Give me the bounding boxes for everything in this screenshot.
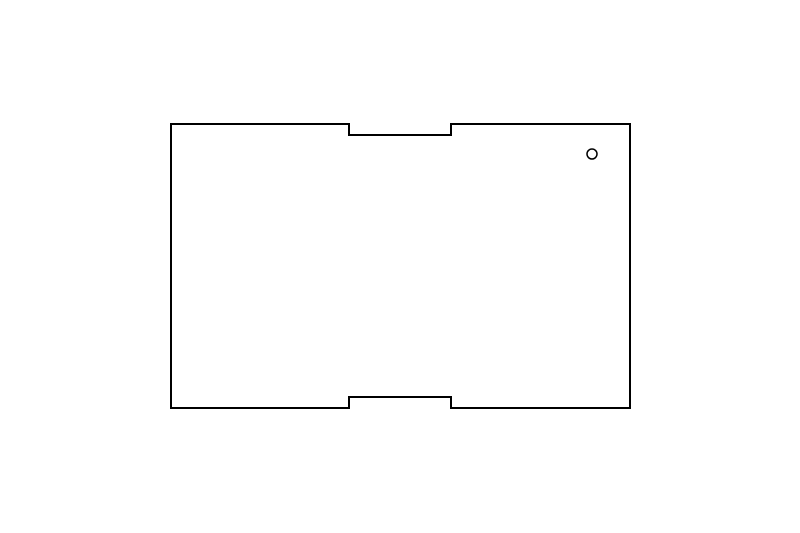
panel-outline-drawing [0,0,800,533]
hole-circle [587,149,597,159]
drawing-canvas [0,0,800,533]
panel-outline-path [171,124,630,408]
